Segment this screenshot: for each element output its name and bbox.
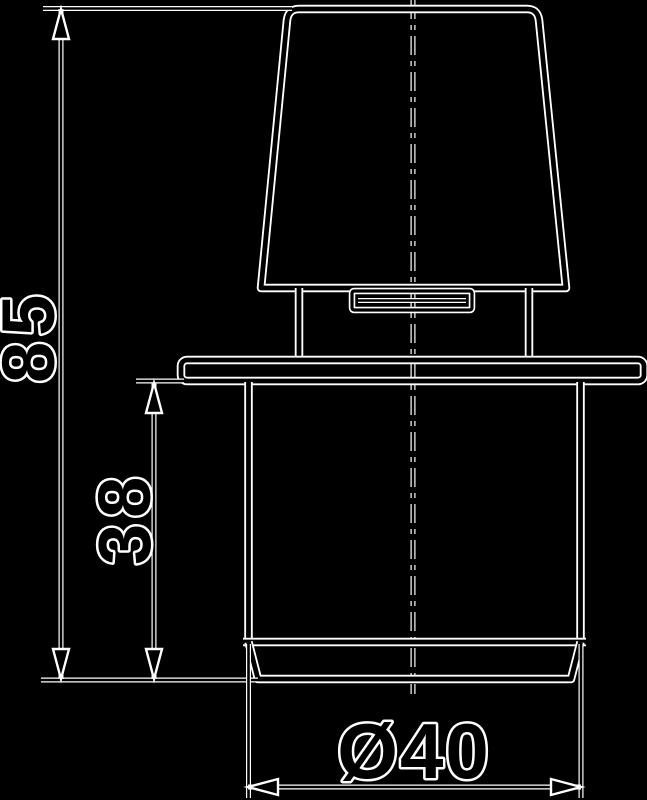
neck-recess — [352, 291, 472, 310]
dimension-label-diameter: Ø40 — [337, 707, 490, 795]
dimension-label-body-height: 38 — [83, 471, 166, 565]
dimension-label-total-height: 85 — [0, 289, 70, 383]
drawing-svg: 85 38 Ø40 — [0, 0, 647, 800]
technical-drawing-canvas: 85 38 Ø40 — [0, 0, 647, 800]
